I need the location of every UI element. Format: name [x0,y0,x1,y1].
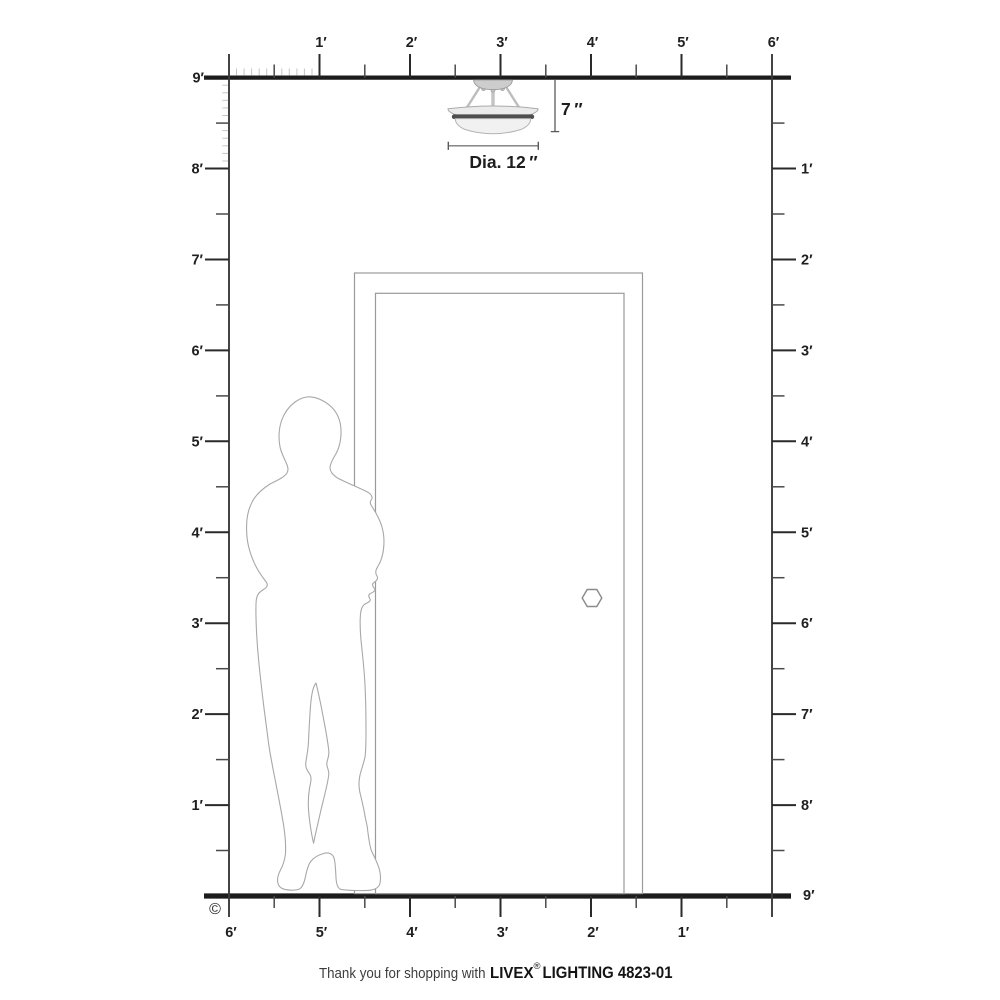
svg-text:5′: 5′ [801,525,813,541]
svg-text:5′: 5′ [677,35,689,51]
svg-text:2′: 2′ [406,35,418,51]
svg-text:9′: 9′ [192,71,204,87]
svg-text:3′: 3′ [191,616,203,632]
svg-text:Thank you for shopping with: Thank you for shopping with [319,965,486,982]
svg-text:6′: 6′ [768,35,780,51]
svg-text:6′: 6′ [801,616,813,632]
svg-text:4′: 4′ [801,434,813,450]
svg-text:1′: 1′ [801,162,813,178]
svg-text:6′: 6′ [225,925,237,941]
svg-text:2′: 2′ [191,707,203,723]
svg-text:8′: 8′ [191,162,203,178]
svg-text:2′: 2′ [587,925,599,941]
svg-text:7′: 7′ [191,253,203,269]
svg-text:5′: 5′ [316,925,328,941]
svg-text:4′: 4′ [406,925,418,941]
svg-text:®: ® [534,961,541,972]
svg-text:4′: 4′ [191,525,203,541]
svg-text:7′: 7′ [801,707,813,723]
svg-text:6′: 6′ [191,343,203,359]
svg-text:5′: 5′ [191,434,203,450]
svg-text:1′: 1′ [191,798,203,814]
svg-text:1′: 1′ [678,925,690,941]
svg-text:LIGHTING 4823-01: LIGHTING 4823-01 [543,964,673,982]
svg-text:LIVEX: LIVEX [490,965,534,982]
svg-text:8′: 8′ [801,798,813,814]
svg-text:7 ″: 7 ″ [561,99,583,119]
svg-text:2′: 2′ [801,253,813,269]
svg-text:Dia. 12 ″: Dia. 12 ″ [469,152,538,172]
svg-text:1′: 1′ [315,35,327,51]
svg-text:3′: 3′ [801,343,813,359]
svg-text:9′: 9′ [803,888,815,904]
svg-text:©: © [209,901,221,918]
svg-text:3′: 3′ [496,35,508,51]
svg-text:4′: 4′ [587,35,599,51]
svg-text:3′: 3′ [497,925,509,941]
